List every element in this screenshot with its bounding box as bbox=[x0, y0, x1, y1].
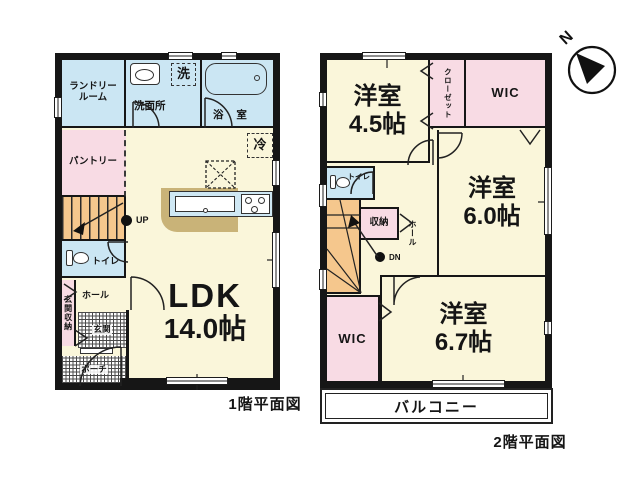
window bbox=[168, 52, 193, 60]
window bbox=[221, 52, 237, 60]
room-wic-bottom-label: WIC bbox=[338, 332, 366, 347]
room-45: 洋室 4.5帖 bbox=[327, 60, 430, 163]
room-entrance: 玄関 bbox=[78, 312, 126, 348]
room-ldk-label: LDK 14.0帖 bbox=[140, 278, 270, 345]
refrigerator-label: 冷 bbox=[253, 138, 266, 153]
stove-icon bbox=[241, 194, 270, 214]
sink-basin-icon bbox=[135, 69, 154, 81]
room-pantry: パントリー bbox=[62, 130, 126, 197]
window bbox=[54, 97, 62, 118]
room-closet: クローゼット bbox=[430, 60, 466, 128]
bathtub-icon bbox=[205, 63, 267, 95]
room-washroom: 洗 洗面所 bbox=[126, 60, 202, 128]
window bbox=[544, 167, 552, 235]
window bbox=[544, 321, 552, 335]
room-67: 洋室 6.7帖 bbox=[380, 275, 545, 381]
dn-dot bbox=[375, 252, 385, 262]
balcony-label: バルコニー bbox=[394, 396, 479, 417]
balcony-inner: バルコニー bbox=[325, 393, 548, 419]
up-dot bbox=[121, 215, 132, 226]
room-hall-2f-label: ホール bbox=[407, 220, 418, 247]
ldk-name: LDK bbox=[140, 278, 270, 314]
room-60: 洋室 6.0帖 bbox=[437, 130, 545, 277]
room-storage-label: 収納 bbox=[369, 218, 388, 229]
room-storage: 収納 bbox=[361, 207, 399, 240]
refrigerator-box: 冷 bbox=[247, 133, 273, 158]
room-porch-label: ポーチ bbox=[80, 365, 108, 375]
north-compass-icon: N bbox=[548, 26, 630, 102]
kitchen-countertop bbox=[169, 191, 273, 217]
room-closet-label: クローゼット bbox=[443, 68, 452, 119]
room-entrance-storage-label: 玄関収納 bbox=[63, 295, 72, 331]
washer-box: 洗 bbox=[171, 63, 196, 86]
burner-icon bbox=[251, 206, 258, 213]
floor1-caption: 1階平面図 bbox=[210, 393, 320, 414]
room-67-name: 洋室 bbox=[440, 301, 488, 329]
room-wic-bottom: WIC bbox=[327, 295, 380, 381]
balcony: バルコニー bbox=[320, 388, 553, 424]
toilet-bowl-icon bbox=[73, 252, 89, 264]
entrance-step bbox=[80, 348, 113, 354]
room-wic-top-label: WIC bbox=[491, 86, 519, 101]
room-bath: 浴 室 bbox=[202, 60, 273, 128]
window bbox=[362, 52, 406, 60]
room-washroom-label: 洗面所 bbox=[134, 98, 166, 113]
room-67-size: 6.7帖 bbox=[435, 329, 492, 357]
room-hall-1f-label: ホール bbox=[82, 288, 109, 301]
window bbox=[166, 377, 228, 385]
dn-label: DN bbox=[389, 253, 401, 262]
burner-icon bbox=[258, 197, 265, 204]
ldk-size: 14.0帖 bbox=[140, 314, 270, 345]
room-toilet-1f: トイレ bbox=[62, 241, 126, 278]
room-45-size: 4.5帖 bbox=[349, 111, 406, 139]
room-45-name: 洋室 bbox=[354, 83, 402, 111]
interior-wall bbox=[126, 310, 129, 383]
washer-label: 洗 bbox=[177, 67, 190, 82]
up-label: UP bbox=[136, 215, 149, 225]
room-entrance-label: 玄関 bbox=[92, 325, 111, 335]
sink-handle-icon bbox=[203, 208, 208, 213]
room-60-size: 6.0帖 bbox=[463, 203, 520, 231]
floor1-plan: ランドリー ルーム 洗 洗面所 浴 室 パントリー bbox=[55, 53, 280, 390]
room-porch: ポーチ bbox=[62, 356, 126, 383]
room-toilet-2f: トイレ bbox=[327, 166, 375, 200]
bathtub-drain-icon bbox=[254, 75, 260, 81]
floorplan-image: ランドリー ルーム 洗 洗面所 浴 室 パントリー bbox=[0, 0, 635, 480]
window bbox=[319, 184, 327, 207]
room-toilet-1f-label: トイレ bbox=[92, 254, 119, 267]
room-60-name: 洋室 bbox=[468, 175, 516, 203]
sink-icon bbox=[130, 63, 160, 85]
room-bath-label: 浴 室 bbox=[213, 107, 252, 122]
burner-icon bbox=[245, 197, 252, 204]
stairs-up bbox=[62, 197, 126, 241]
room-laundry: ランドリー ルーム bbox=[62, 60, 126, 128]
room-laundry-label2: ルーム bbox=[79, 93, 107, 104]
window bbox=[272, 232, 280, 288]
compass-n-label: N bbox=[557, 28, 577, 48]
room-wic-top: WIC bbox=[466, 60, 545, 128]
toilet-tank-icon bbox=[66, 250, 73, 266]
window bbox=[272, 160, 280, 186]
window bbox=[319, 269, 327, 290]
kitchen-sink-icon bbox=[175, 196, 235, 212]
window bbox=[319, 92, 327, 107]
room-entrance-storage: 玄関収納 bbox=[62, 280, 76, 346]
room-toilet-2f-label: トイレ bbox=[348, 171, 371, 182]
floor2-caption: 2階平面図 bbox=[475, 431, 585, 452]
stairs-down bbox=[327, 200, 361, 294]
room-pantry-label: パントリー bbox=[69, 157, 117, 168]
floor2-plan: 洋室 4.5帖 クローゼット WIC 洋室 6.0帖 トイレ 収納 ホール bbox=[320, 53, 552, 388]
balcony-window bbox=[432, 380, 505, 388]
